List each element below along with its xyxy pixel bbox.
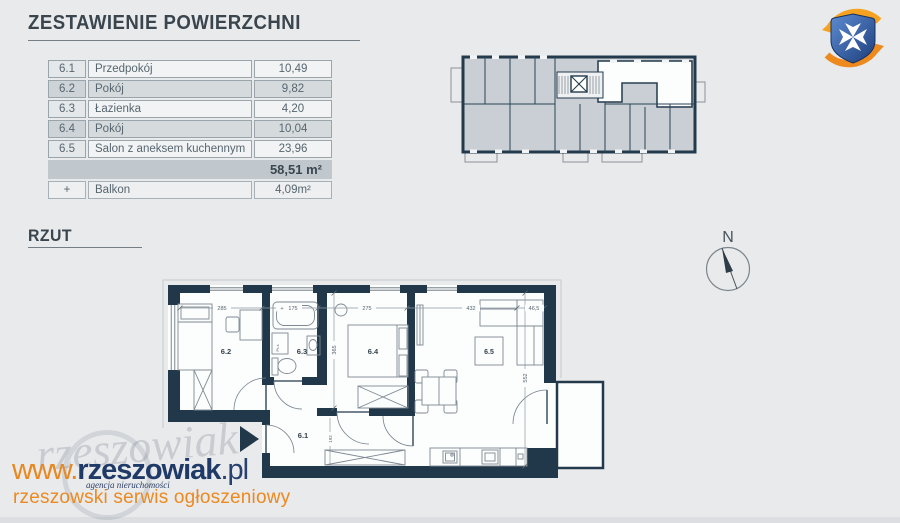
table-row: 6.3 Łazienka 4,20 <box>48 100 332 118</box>
room-label-6-3: 6.3 <box>297 347 307 356</box>
dim-365: 365 <box>332 345 338 354</box>
room-label-6-2: 6.2 <box>221 347 231 356</box>
compass-needle-head-icon <box>722 248 733 273</box>
room-number: 6.1 <box>48 60 86 78</box>
dim-285: 285 <box>217 306 226 312</box>
balcony-plus: + <box>48 181 86 199</box>
room-area: 9,82 <box>254 80 332 98</box>
watermark-www: www. <box>12 454 77 486</box>
room-area: 23,96 <box>254 140 332 158</box>
room-number: 6.2 <box>48 80 86 98</box>
balcony-name: Balkon <box>88 181 252 199</box>
washer-label: Pr-ś <box>276 344 280 351</box>
table-row: 6.4 Pokój 10,04 <box>48 120 332 138</box>
balcony-area: 4,09m² <box>254 181 332 199</box>
rzut-underline <box>28 247 142 248</box>
table-row: 6.5 Salon z aneksem kuchennym 23,96 <box>48 140 332 158</box>
room-label-6-5: 6.5 <box>484 349 494 356</box>
room-label-6-4: 6.4 <box>368 347 379 356</box>
dim-432: 432 <box>466 306 475 312</box>
table-row: 6.1 Przedpokój 10,49 <box>48 60 332 78</box>
title-underline <box>28 40 360 41</box>
rzeszowiak-logo-icon <box>818 3 888 73</box>
balcony-row: + Balkon 4,09m² <box>48 181 332 199</box>
room-number: 6.3 <box>48 100 86 118</box>
area-table: 6.1 Przedpokój 10,49 6.2 Pokój 9,82 6.3 … <box>46 58 334 201</box>
dim-46-5: 46,5 <box>529 306 540 312</box>
room-area: 10,04 <box>254 120 332 138</box>
dim-plus: + <box>280 306 283 312</box>
total-area: 58,51 m² <box>48 160 332 179</box>
bottom-strip <box>0 517 900 523</box>
balcony <box>557 382 603 468</box>
table-row: 6.2 Pokój 9,82 <box>48 80 332 98</box>
entrance-arrow-icon <box>240 426 259 452</box>
dim-552: 552 <box>523 373 529 382</box>
north-label: N <box>722 229 734 246</box>
room-name: Pokój <box>88 80 252 98</box>
plan-heading: RZUT <box>28 226 72 246</box>
room-number: 6.5 <box>48 140 86 158</box>
elevator-icon <box>571 76 587 92</box>
total-row: 58,51 m² <box>48 160 332 179</box>
dim-192: 192 <box>328 435 333 443</box>
room-name: Pokój <box>88 120 252 138</box>
room-label-6-1: 6.1 <box>298 431 308 440</box>
room-name: Przedpokój <box>88 60 252 78</box>
room-number: 6.4 <box>48 120 86 138</box>
watermark-tagline: rzeszowski serwis ogłoszeniowy <box>13 487 290 509</box>
room-area: 10,49 <box>254 60 332 78</box>
dim-275: 275 <box>362 306 371 312</box>
page-title: ZESTAWIENIE POWIERZCHNI <box>28 12 301 35</box>
floorplan-sheet: { "header": { "title": "ZESTAWIENIE POWI… <box>0 0 900 523</box>
room-name: Łazienka <box>88 100 252 118</box>
room-area: 4,20 <box>254 100 332 118</box>
watermark-tld: .pl <box>220 454 248 486</box>
room-name: Salon z aneksem kuchennym <box>88 140 252 158</box>
building-key-plan <box>440 40 720 175</box>
dim-175: 175 <box>288 306 297 312</box>
north-arrow: N <box>695 218 761 304</box>
